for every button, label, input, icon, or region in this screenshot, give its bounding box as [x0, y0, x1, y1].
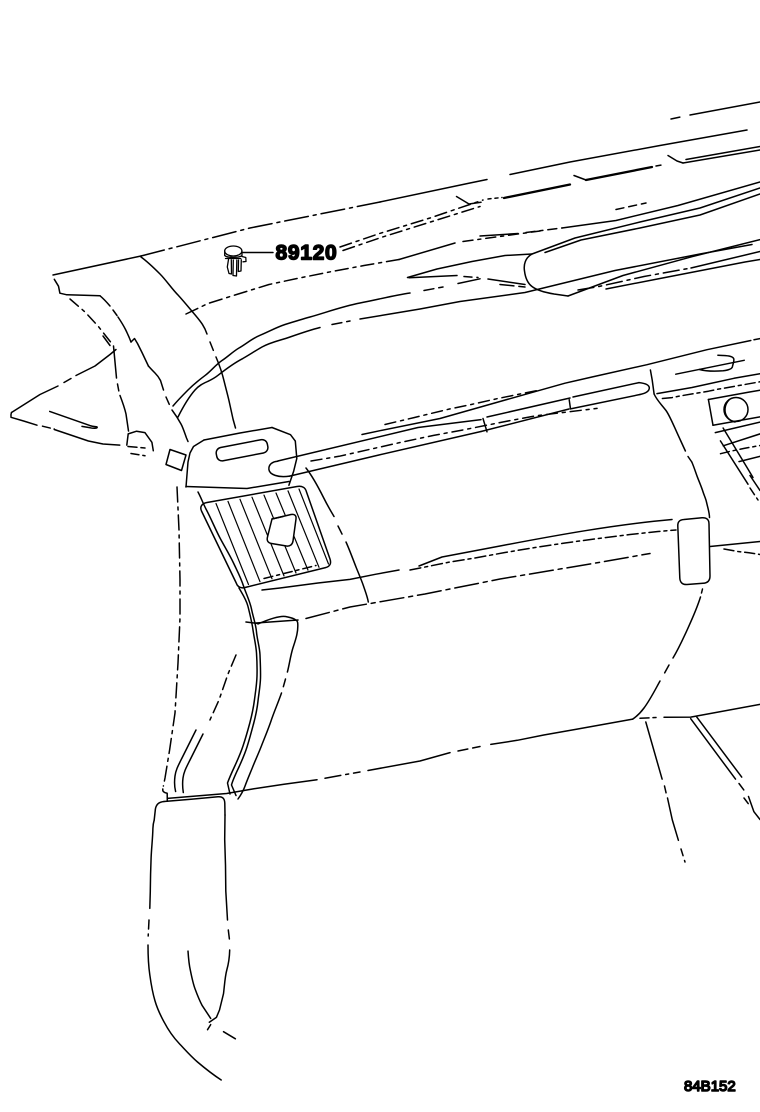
- svg-text:89120: 89120: [276, 242, 338, 265]
- svg-text:84B152: 84B152: [684, 1078, 736, 1095]
